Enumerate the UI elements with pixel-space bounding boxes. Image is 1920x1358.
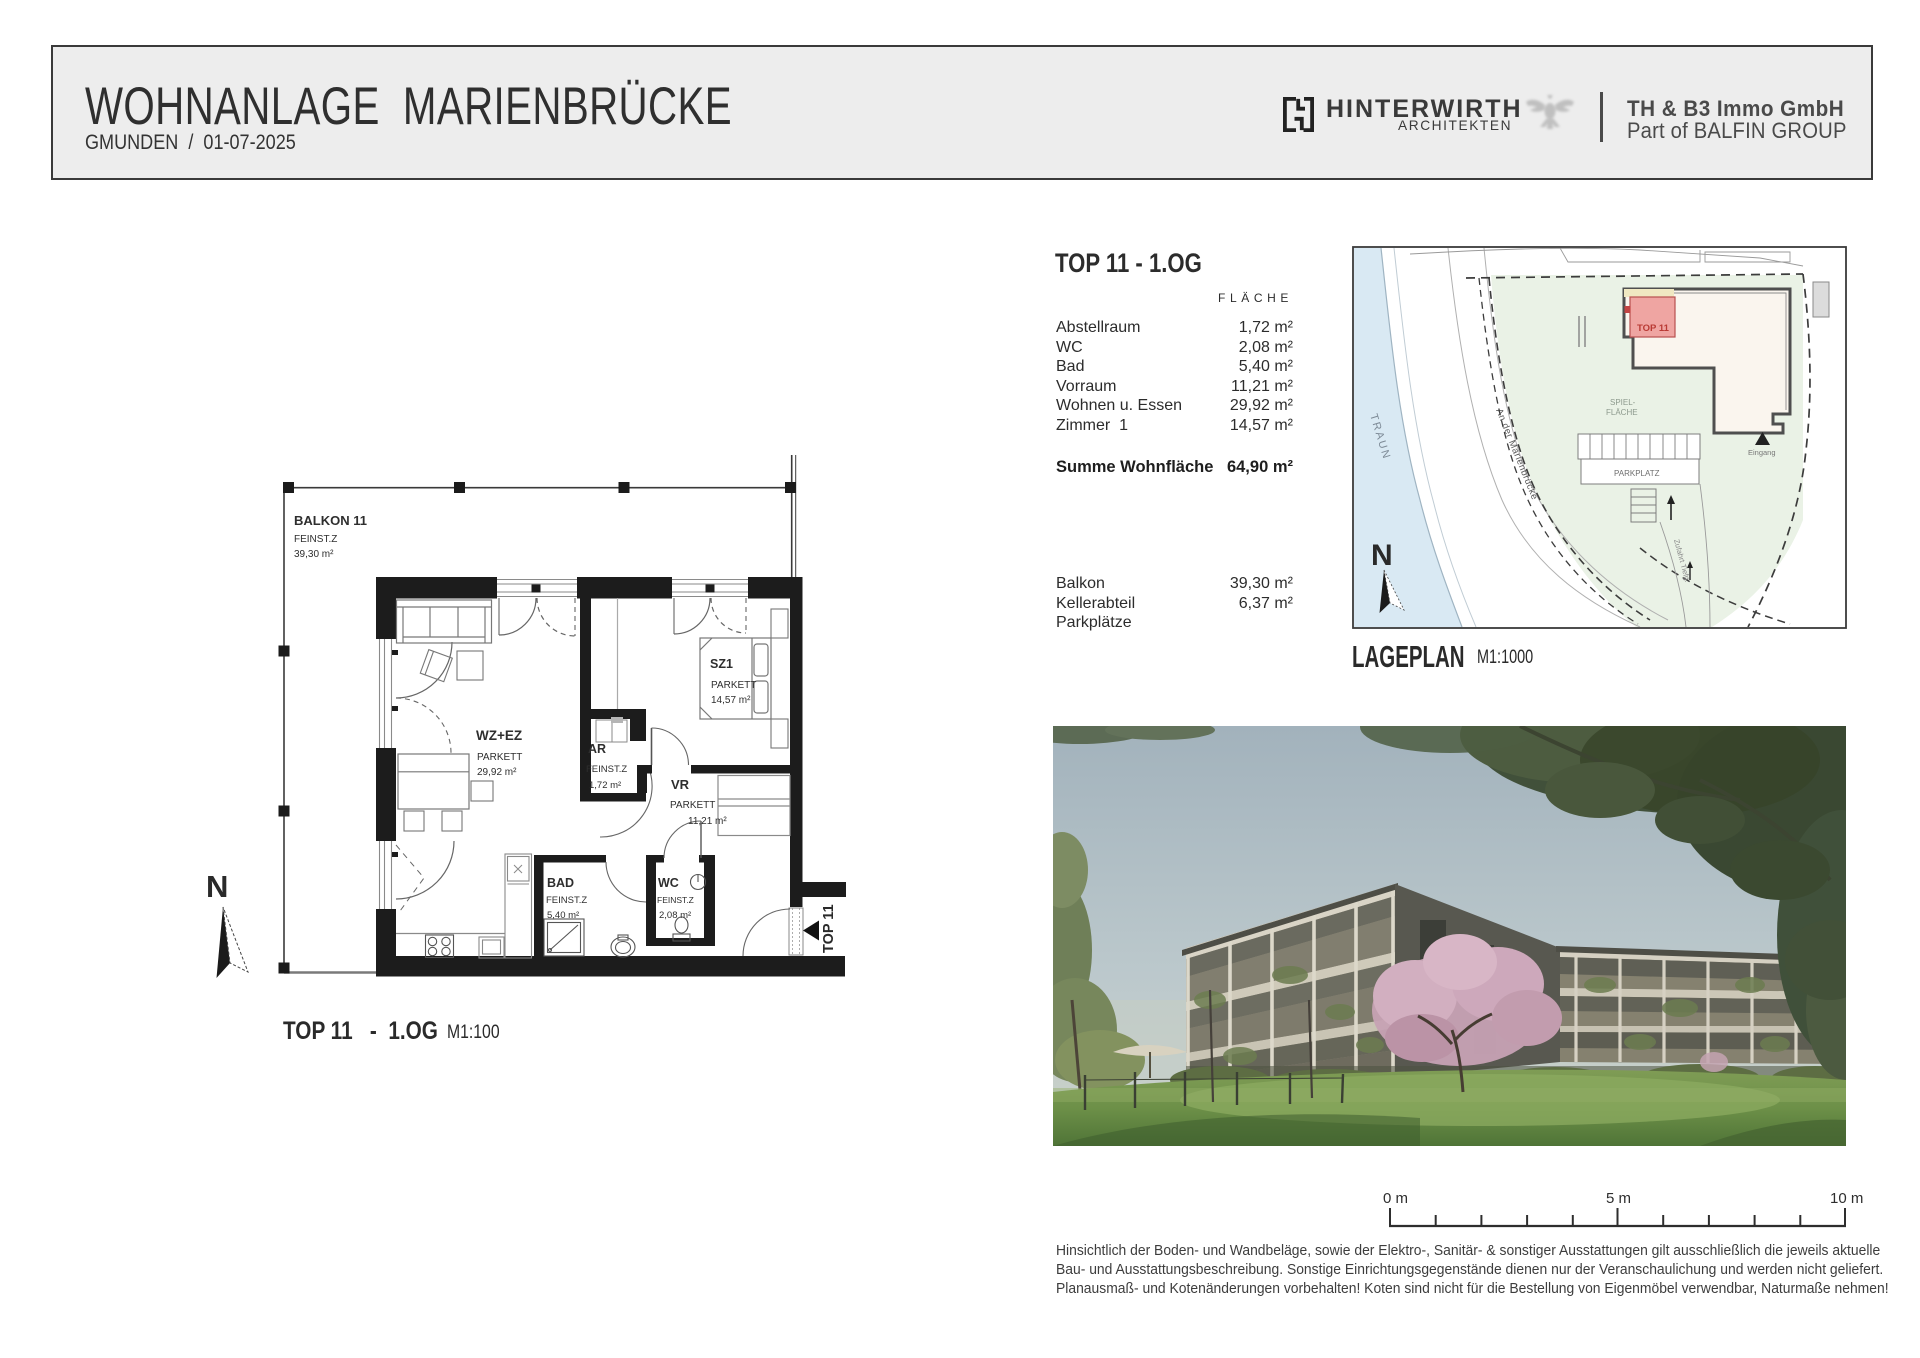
svg-text:5 m: 5 m (1606, 1190, 1631, 1207)
svg-text:BAD: BAD (547, 876, 574, 890)
svg-text:PARKETT: PARKETT (711, 680, 756, 691)
svg-text:TOP 11: TOP 11 (821, 904, 837, 953)
svg-text:PARKETT: PARKETT (477, 752, 522, 763)
svg-text:VR: VR (671, 777, 690, 792)
svg-text:AR: AR (588, 742, 606, 756)
svg-text:FEINST.Z: FEINST.Z (657, 895, 694, 905)
svg-text:SPIEL-: SPIEL- (1610, 398, 1636, 407)
svg-text:N: N (206, 869, 228, 904)
svg-text:SZ1: SZ1 (710, 657, 733, 671)
svg-text:0 m: 0 m (1383, 1190, 1408, 1207)
svg-text:11,21 m²: 11,21 m² (688, 816, 727, 827)
svg-text:WC: WC (658, 876, 679, 890)
svg-text:FEINST.Z: FEINST.Z (294, 534, 337, 545)
svg-text:WZ+EZ: WZ+EZ (476, 728, 522, 743)
svg-text:2,08 m²: 2,08 m² (659, 910, 691, 921)
svg-text:N: N (1371, 539, 1393, 572)
svg-text:FLÄCHE: FLÄCHE (1606, 408, 1638, 417)
svg-text:29,92 m²: 29,92 m² (477, 767, 517, 778)
svg-text:39,30 m²: 39,30 m² (294, 549, 334, 560)
svg-text:BALKON 11: BALKON 11 (294, 513, 367, 528)
svg-text:PARKPLATZ: PARKPLATZ (1614, 469, 1660, 478)
svg-text:FEINST.Z: FEINST.Z (586, 764, 627, 775)
svg-text:Eingang: Eingang (1748, 448, 1776, 457)
svg-text:TOP 11: TOP 11 (1637, 323, 1670, 334)
svg-text:PARKETT: PARKETT (670, 800, 715, 811)
svg-text:1,72 m²: 1,72 m² (589, 780, 621, 791)
svg-text:14,57 m²: 14,57 m² (711, 695, 751, 706)
svg-text:10 m: 10 m (1830, 1190, 1863, 1207)
svg-text:FEINST.Z: FEINST.Z (546, 895, 587, 906)
svg-text:5,40 m²: 5,40 m² (547, 910, 579, 921)
